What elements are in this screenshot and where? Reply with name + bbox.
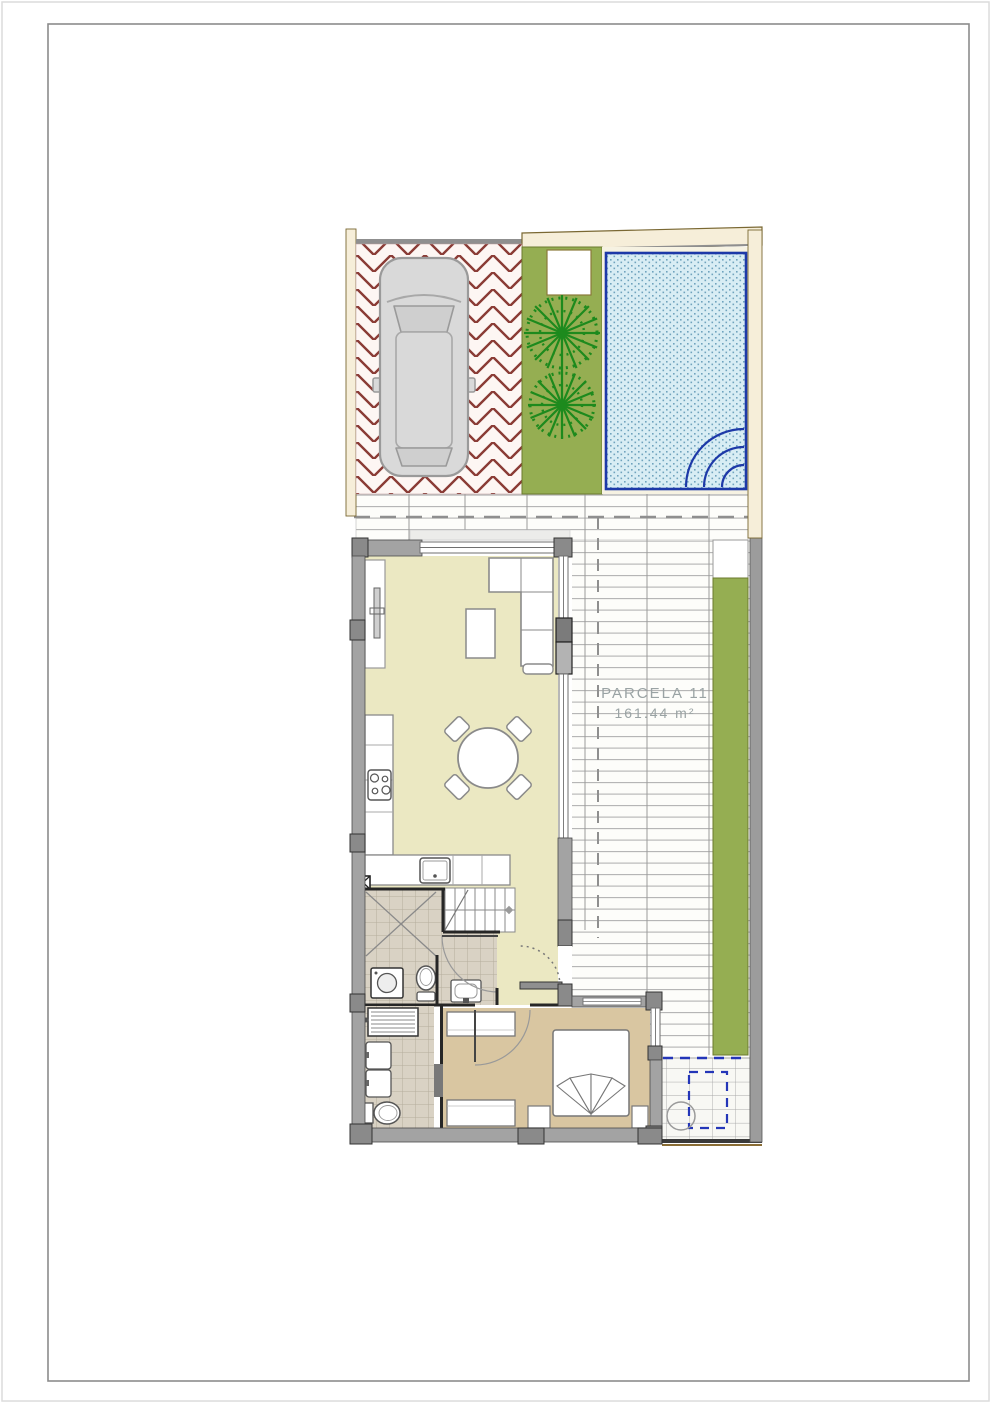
pillar [558, 920, 572, 946]
toilet-icon [364, 1102, 400, 1124]
pool [602, 247, 748, 494]
tree-icon [524, 295, 600, 371]
tree-icon [528, 371, 596, 439]
pillar [518, 1128, 544, 1144]
washing-machine-icon [371, 968, 403, 998]
pillar [554, 538, 572, 557]
floor-plan: PARCELA 11 161.44 m² [0, 0, 992, 1404]
window [583, 998, 641, 1005]
stairs [445, 888, 515, 932]
nightstand [528, 1106, 550, 1128]
tv-unit [365, 560, 385, 668]
nightstand [632, 1106, 648, 1128]
hob-icon [368, 770, 391, 800]
vanity-sink-icon [451, 980, 481, 1003]
pillar [558, 984, 572, 1006]
lawn-strip [713, 578, 748, 1055]
parcel-area: 161.44 m² [614, 705, 695, 721]
kitchen-sink-icon [420, 858, 450, 883]
deck-planter-box [713, 540, 748, 578]
pillar [556, 618, 572, 642]
pillar [350, 834, 365, 852]
sliding-glass-door [559, 556, 568, 618]
pillar [350, 994, 365, 1012]
pillar [350, 620, 365, 640]
wardrobe [447, 1100, 515, 1126]
front-door-leaf [520, 982, 562, 989]
window [420, 542, 556, 553]
pillar [648, 1046, 662, 1060]
ac-unit [556, 642, 572, 674]
garden-shed-pad [547, 250, 591, 295]
plan-sheet: PARCELA 11 161.44 m² [0, 0, 992, 1404]
shower-tray-icon [364, 1008, 419, 1036]
car [373, 258, 475, 476]
pillar [352, 538, 368, 557]
boundary-wall-east-top [748, 230, 762, 538]
ensuite-bathroom [362, 1006, 443, 1128]
window [651, 1008, 660, 1046]
coffee-table [466, 609, 495, 658]
pillar [646, 992, 662, 1010]
pillar [638, 1128, 662, 1144]
parcel-label: PARCELA 11 [601, 685, 709, 702]
pillar [350, 1124, 372, 1144]
boundary-wall-west [346, 229, 356, 516]
toilet-icon [417, 966, 436, 1001]
bed [553, 1030, 629, 1116]
boundary-wall-east [750, 538, 762, 1142]
wardrobe [447, 1012, 515, 1036]
boundary-line-top [356, 239, 522, 244]
sliding-glass-door [559, 674, 568, 838]
bedroom [443, 1008, 650, 1128]
ensuite-door-opening [434, 1064, 443, 1097]
